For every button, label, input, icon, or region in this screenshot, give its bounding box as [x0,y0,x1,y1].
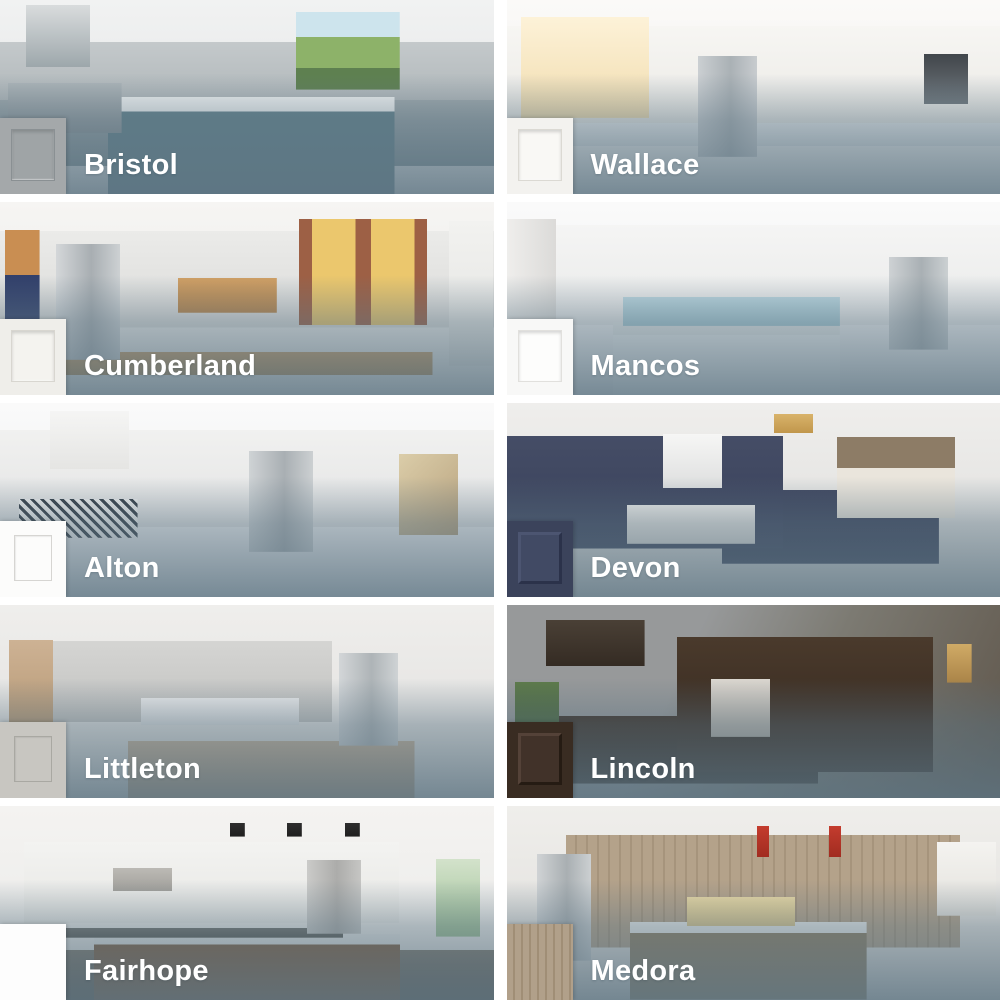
style-name: Alton [84,554,160,583]
style-name: Littleton [84,755,201,784]
style-name: Mancos [591,352,701,381]
label-gradient-overlay [0,806,494,1000]
door-sample-swatch [0,319,66,395]
style-card-littleton[interactable]: Littleton [0,605,494,799]
style-name: Devon [591,554,681,583]
style-name: Medora [591,957,696,986]
cabinet-style-grid: Bristol Wallace Cumberland Mancos Alton [0,0,1000,1000]
door-panel [518,330,562,382]
label-gradient-overlay [507,806,1000,1000]
door-sample-swatch [507,521,573,597]
style-name: Wallace [591,151,700,180]
style-card-alton[interactable]: Alton [0,403,494,597]
door-sample-swatch [0,118,66,194]
door-panel [518,733,562,785]
label-gradient-overlay [507,202,1000,396]
style-card-lincoln[interactable]: Lincoln [507,605,1000,799]
label-gradient-overlay [0,0,494,194]
label-gradient-overlay [507,0,1000,194]
door-sample-swatch [0,722,66,798]
style-card-devon[interactable]: Devon [507,403,1000,597]
door-panel [14,736,52,782]
style-card-mancos[interactable]: Mancos [507,202,1000,396]
style-card-wallace[interactable]: Wallace [507,0,1000,194]
door-sample-swatch [507,118,573,194]
door-sample-swatch [0,924,66,1000]
style-card-fairhope[interactable]: Fairhope [0,806,494,1000]
label-gradient-overlay [0,403,494,597]
door-panel [518,532,562,584]
door-panel [11,129,55,181]
door-panel [518,129,562,181]
door-sample-swatch [0,521,66,597]
door-panel [11,330,55,382]
door-sample-swatch [507,319,573,395]
door-sample-swatch [507,924,573,1000]
label-gradient-overlay [507,605,1000,799]
label-gradient-overlay [507,403,1000,597]
style-name: Bristol [84,151,178,180]
label-gradient-overlay [0,605,494,799]
door-panel [14,535,52,581]
style-card-bristol[interactable]: Bristol [0,0,494,194]
style-name: Fairhope [84,957,209,986]
door-sample-swatch [507,722,573,798]
style-card-cumberland[interactable]: Cumberland [0,202,494,396]
style-name: Lincoln [591,755,696,784]
style-name: Cumberland [84,352,256,381]
style-card-medora[interactable]: Medora [507,806,1000,1000]
